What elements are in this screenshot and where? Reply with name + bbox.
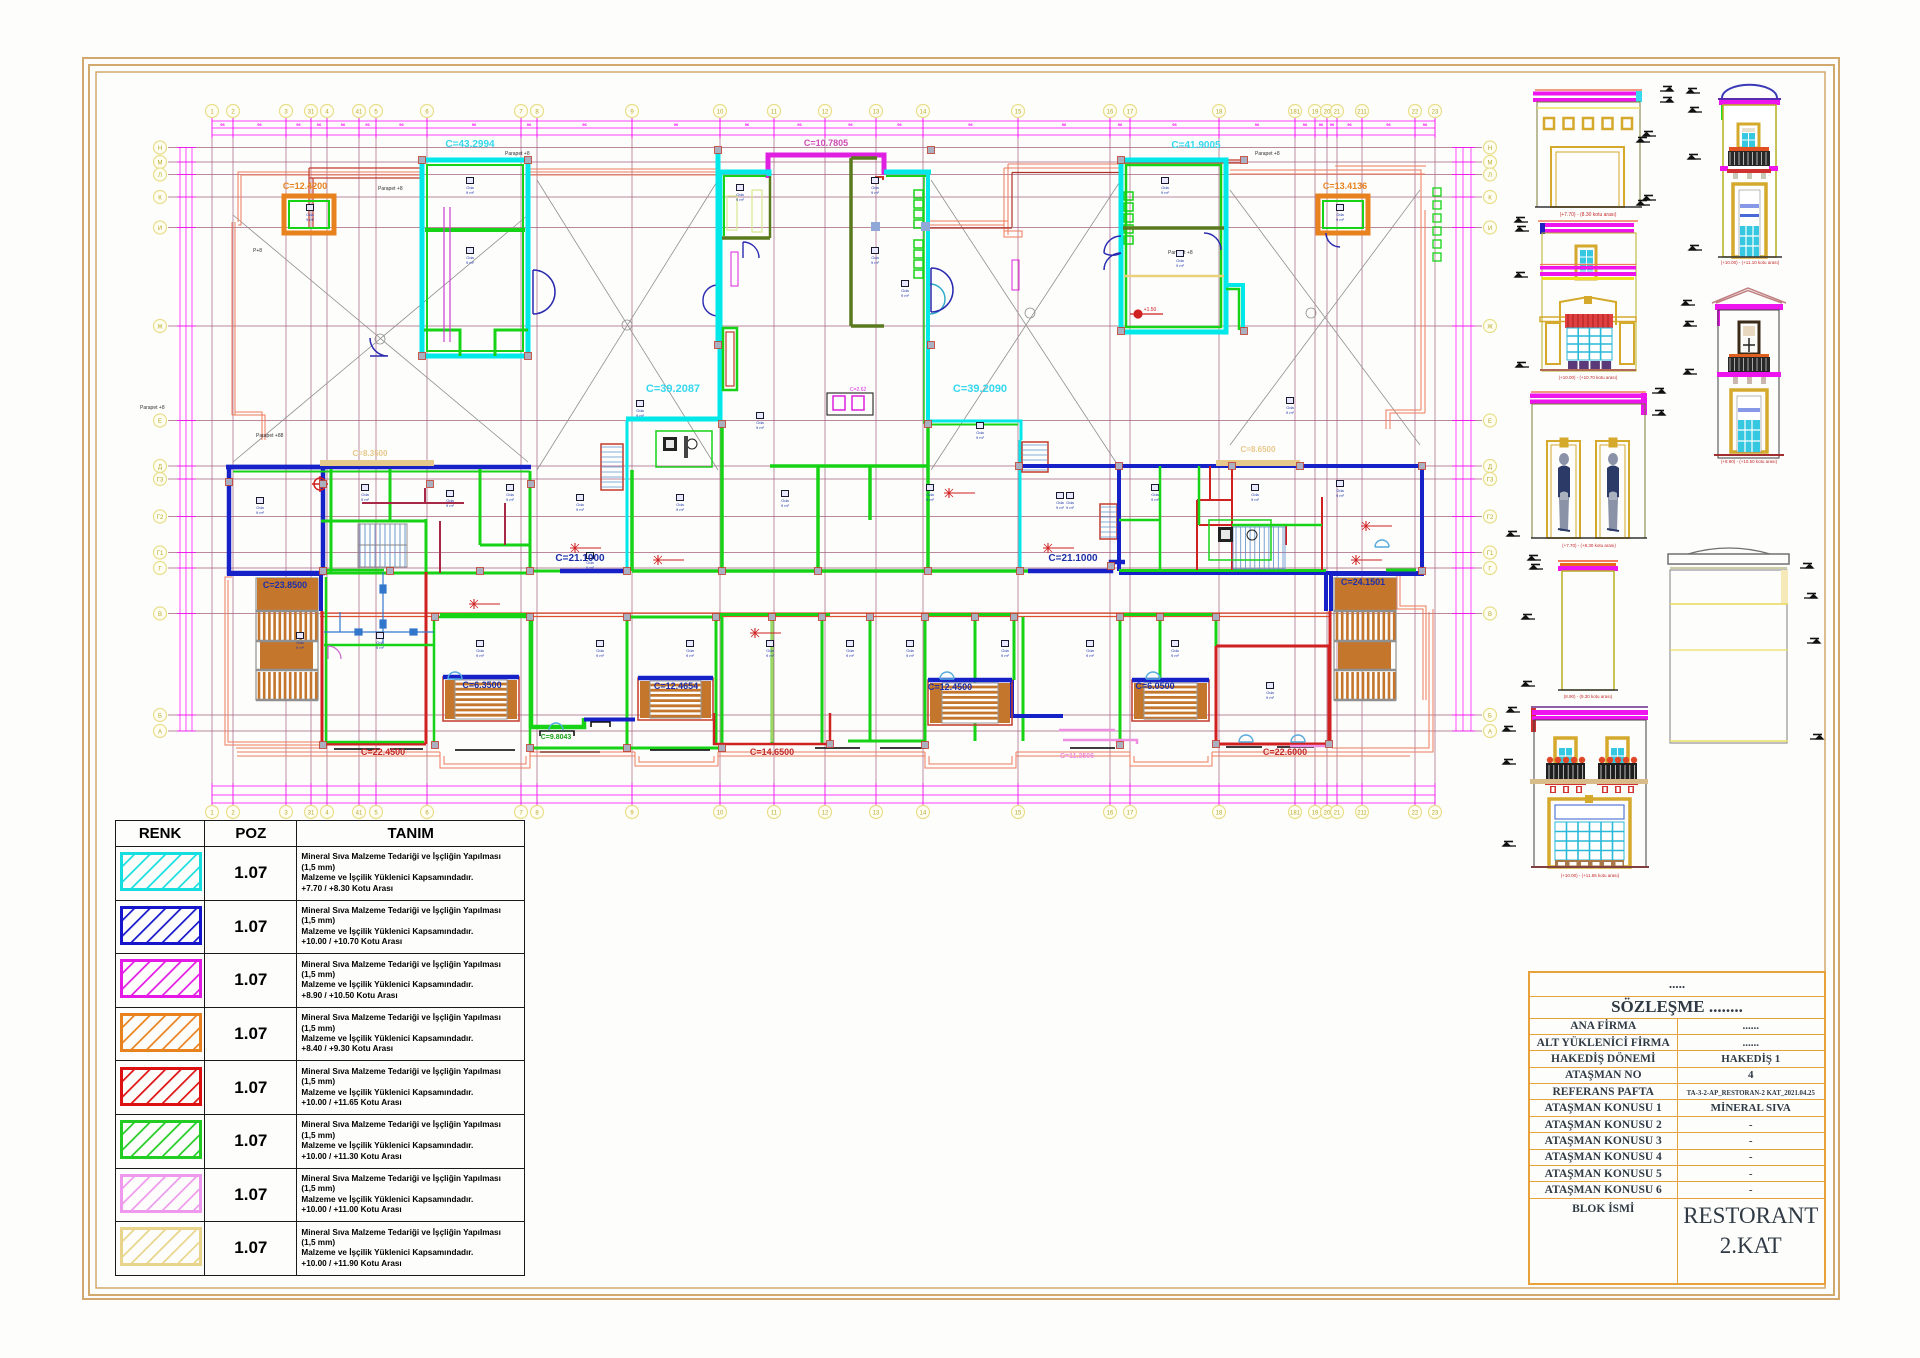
svg-text:(+7.70) - (+8.30 kotu arası): (+7.70) - (+8.30 kotu arası): [1562, 543, 1616, 548]
svg-text:96: 96: [1319, 122, 1324, 127]
svg-text:(+10.00) - (+10.70 kotu arası): (+10.00) - (+10.70 kotu arası): [1559, 375, 1618, 380]
svg-text:41: 41: [356, 811, 363, 817]
svg-text:96: 96: [797, 122, 802, 127]
svg-text:(+8.90) - (+10.50 kotu arası): (+8.90) - (+10.50 kotu arası): [1721, 459, 1778, 464]
svg-text:9 m²: 9 m²: [1286, 410, 1295, 415]
svg-text:96: 96: [1255, 122, 1260, 127]
svg-text:11: 11: [771, 110, 778, 116]
svg-text:C=43.2994: C=43.2994: [445, 139, 495, 150]
svg-text:181: 181: [1290, 110, 1301, 116]
svg-text:C=12.4654: C=12.4654: [654, 681, 698, 691]
svg-text:41: 41: [356, 110, 363, 116]
svg-text:18: 18: [1216, 811, 1223, 817]
svg-text:96: 96: [472, 122, 477, 127]
svg-text:9 m²: 9 m²: [1161, 190, 1170, 195]
svg-text:C=39.2087: C=39.2087: [646, 383, 700, 395]
svg-text:96: 96: [1423, 122, 1428, 127]
svg-text:96: 96: [848, 122, 853, 127]
svg-text:9 m²: 9 m²: [466, 260, 475, 265]
svg-text:И: И: [1488, 226, 1492, 232]
svg-text:9 m²: 9 m²: [926, 497, 935, 502]
svg-text:Л: Л: [1488, 173, 1492, 179]
svg-text:13: 13: [873, 811, 880, 817]
svg-text:C=41.9005: C=41.9005: [1171, 140, 1221, 151]
svg-text:181: 181: [1290, 811, 1301, 817]
svg-text:C=6.3500: C=6.3500: [462, 680, 501, 690]
svg-text:15: 15: [1015, 110, 1022, 116]
svg-text:Parapet +8: Parapet +8: [1255, 151, 1280, 157]
svg-text:96: 96: [399, 122, 404, 127]
svg-text:96: 96: [220, 122, 225, 127]
svg-text:96: 96: [968, 122, 973, 127]
svg-text:C=13.4136: C=13.4136: [1323, 181, 1367, 191]
svg-text:9 m²: 9 m²: [1266, 695, 1275, 700]
svg-text:Н: Н: [1488, 146, 1492, 152]
svg-text:23: 23: [1432, 110, 1439, 116]
svg-text:9 m²: 9 m²: [296, 645, 305, 650]
svg-text:+1.50: +1.50: [1144, 307, 1157, 313]
svg-text:9 m²: 9 m²: [736, 197, 745, 202]
svg-text:96: 96: [674, 122, 679, 127]
svg-text:9 m²: 9 m²: [1251, 497, 1260, 502]
svg-text:Е: Е: [1488, 419, 1492, 425]
svg-text:C=22.4500: C=22.4500: [361, 747, 405, 757]
svg-text:Г3: Г3: [1487, 478, 1494, 484]
svg-text:9 m²: 9 m²: [636, 413, 645, 418]
svg-text:(+10.00) - (+11.65 kotu arası): (+10.00) - (+11.65 kotu arası): [1561, 873, 1620, 878]
svg-text:К: К: [158, 196, 162, 202]
svg-text:C=9.8043: C=9.8043: [541, 734, 572, 741]
svg-text:9 m²: 9 m²: [361, 497, 370, 502]
svg-text:21: 21: [1334, 811, 1341, 817]
svg-text:Г2: Г2: [1487, 515, 1494, 521]
svg-text:C=39.2090: C=39.2090: [953, 383, 1007, 395]
svg-text:20: 20: [1324, 110, 1331, 116]
svg-text:10: 10: [717, 811, 724, 817]
svg-text:C=12.4500: C=12.4500: [928, 682, 972, 692]
svg-text:96: 96: [897, 122, 902, 127]
svg-text:96: 96: [1303, 122, 1308, 127]
svg-text:96: 96: [1347, 122, 1352, 127]
svg-text:96: 96: [257, 122, 262, 127]
svg-text:Ж: Ж: [1487, 325, 1493, 331]
svg-text:(+10.00) - (+11.10 kotu arası): (+10.00) - (+11.10 kotu arası): [1721, 260, 1780, 265]
svg-text:(8.90) - (9.30 kotu arası): (8.90) - (9.30 kotu arası): [1564, 694, 1613, 699]
svg-text:9 m²: 9 m²: [576, 507, 585, 512]
svg-text:96: 96: [1330, 122, 1335, 127]
svg-text:9 m²: 9 m²: [756, 425, 765, 430]
svg-text:C=8.6500: C=8.6500: [1241, 445, 1276, 454]
svg-text:18: 18: [1216, 110, 1223, 116]
svg-text:9 m²: 9 m²: [376, 645, 385, 650]
svg-text:22: 22: [1412, 110, 1419, 116]
svg-text:C=2.62: C=2.62: [850, 387, 866, 393]
svg-text:19: 19: [1312, 110, 1319, 116]
svg-text:20: 20: [1324, 811, 1331, 817]
svg-text:А: А: [158, 730, 162, 736]
svg-text:9 m²: 9 m²: [1176, 263, 1185, 268]
svg-text:9 m²: 9 m²: [1056, 505, 1065, 510]
svg-text:9 m²: 9 m²: [1336, 493, 1345, 498]
svg-text:В: В: [158, 612, 162, 618]
svg-text:Л: Л: [158, 173, 162, 179]
svg-text:9 m²: 9 m²: [871, 190, 880, 195]
svg-text:Г1: Г1: [1487, 551, 1494, 557]
svg-text:96: 96: [582, 122, 587, 127]
svg-text:9 m²: 9 m²: [1086, 653, 1095, 658]
svg-text:9 m²: 9 m²: [256, 510, 265, 515]
svg-text:10: 10: [717, 110, 724, 116]
svg-text:96: 96: [365, 122, 370, 127]
svg-text:9 m²: 9 m²: [506, 497, 515, 502]
svg-text:96: 96: [1172, 122, 1177, 127]
svg-text:96: 96: [527, 122, 532, 127]
svg-text:Parapet +88: Parapet +88: [256, 433, 284, 439]
svg-text:C=8.3500: C=8.3500: [353, 449, 388, 458]
svg-text:А: А: [1488, 730, 1492, 736]
svg-text:9 m²: 9 m²: [766, 653, 775, 658]
svg-text:Г2: Г2: [157, 515, 164, 521]
svg-text:9 m²: 9 m²: [781, 503, 790, 508]
svg-text:9 m²: 9 m²: [596, 653, 605, 658]
svg-text:15: 15: [1015, 811, 1022, 817]
svg-text:96: 96: [1118, 122, 1123, 127]
svg-text:12: 12: [822, 110, 829, 116]
svg-text:В: В: [1488, 612, 1492, 618]
svg-text:16: 16: [1107, 110, 1114, 116]
svg-text:Д: Д: [1488, 465, 1492, 471]
svg-text:21: 21: [1334, 110, 1341, 116]
svg-text:31: 31: [308, 811, 315, 817]
svg-text:9 m²: 9 m²: [306, 217, 315, 222]
svg-text:C=21.1000: C=21.1000: [1048, 553, 1098, 564]
svg-text:P+8: P+8: [253, 248, 262, 254]
svg-text:9 m²: 9 m²: [676, 507, 685, 512]
svg-text:17: 17: [1127, 811, 1134, 817]
svg-text:96: 96: [1386, 122, 1391, 127]
svg-text:Б: Б: [158, 714, 162, 720]
svg-text:Ж: Ж: [157, 325, 163, 331]
svg-text:22: 22: [1412, 811, 1419, 817]
svg-text:C=24.1501: C=24.1501: [1341, 577, 1385, 587]
svg-text:31: 31: [308, 110, 315, 116]
svg-text:9 m²: 9 m²: [476, 653, 485, 658]
svg-text:211: 211: [1357, 110, 1367, 116]
svg-text:К: К: [1488, 196, 1492, 202]
svg-text:Д: Д: [158, 465, 162, 471]
svg-text:C=21.1000: C=21.1000: [555, 553, 605, 564]
svg-text:9 m²: 9 m²: [686, 653, 695, 658]
svg-text:Parapet +8: Parapet +8: [378, 186, 403, 192]
svg-text:C=14.6500: C=14.6500: [750, 747, 794, 757]
svg-text:19: 19: [1312, 811, 1319, 817]
svg-text:16: 16: [1107, 811, 1114, 817]
svg-text:(+7.70) - (8.30 kotu arası): (+7.70) - (8.30 kotu arası): [1560, 212, 1617, 218]
svg-text:9 m²: 9 m²: [1066, 505, 1075, 510]
svg-text:Parapet +8: Parapet +8: [140, 405, 165, 411]
svg-text:И: И: [158, 226, 162, 232]
svg-text:9 m²: 9 m²: [586, 565, 595, 570]
svg-text:9 m²: 9 m²: [846, 653, 855, 658]
svg-text:Е: Е: [158, 419, 162, 425]
svg-text:13: 13: [873, 110, 880, 116]
svg-text:96: 96: [317, 122, 322, 127]
svg-text:М: М: [158, 161, 163, 167]
svg-text:Г3: Г3: [157, 478, 164, 484]
svg-text:C=11.3506: C=11.3506: [1060, 753, 1094, 760]
svg-text:C=22.6000: C=22.6000: [1263, 747, 1307, 757]
svg-text:96: 96: [341, 122, 346, 127]
svg-text:М: М: [1488, 161, 1493, 167]
svg-text:11: 11: [771, 811, 778, 817]
svg-text:12: 12: [822, 811, 829, 817]
svg-text:9 m²: 9 m²: [1336, 217, 1345, 222]
svg-text:C=12.4200: C=12.4200: [283, 181, 327, 191]
svg-text:9 m²: 9 m²: [976, 435, 985, 440]
svg-text:9 m²: 9 m²: [871, 260, 880, 265]
svg-text:Н: Н: [158, 146, 162, 152]
svg-text:9 m²: 9 m²: [446, 503, 455, 508]
svg-text:9 m²: 9 m²: [1151, 497, 1160, 502]
svg-text:9 m²: 9 m²: [466, 190, 475, 195]
svg-text:17: 17: [1127, 110, 1134, 116]
svg-text:9 m²: 9 m²: [906, 653, 915, 658]
svg-text:C=10.7805: C=10.7805: [804, 138, 848, 148]
svg-text:Б: Б: [1488, 714, 1492, 720]
svg-text:96: 96: [296, 122, 301, 127]
svg-text:211: 211: [1357, 811, 1367, 817]
svg-text:14: 14: [920, 110, 927, 116]
svg-text:9 m²: 9 m²: [1001, 653, 1010, 658]
svg-text:96: 96: [1062, 122, 1067, 127]
svg-text:23: 23: [1432, 811, 1439, 817]
svg-text:Г1: Г1: [157, 551, 164, 557]
svg-text:C=23.8500: C=23.8500: [263, 580, 307, 590]
svg-text:14: 14: [920, 811, 927, 817]
svg-text:9 m²: 9 m²: [1171, 653, 1180, 658]
svg-text:9 m²: 9 m²: [901, 293, 910, 298]
svg-text:C=6.0500: C=6.0500: [1135, 681, 1174, 691]
svg-text:96: 96: [745, 122, 750, 127]
